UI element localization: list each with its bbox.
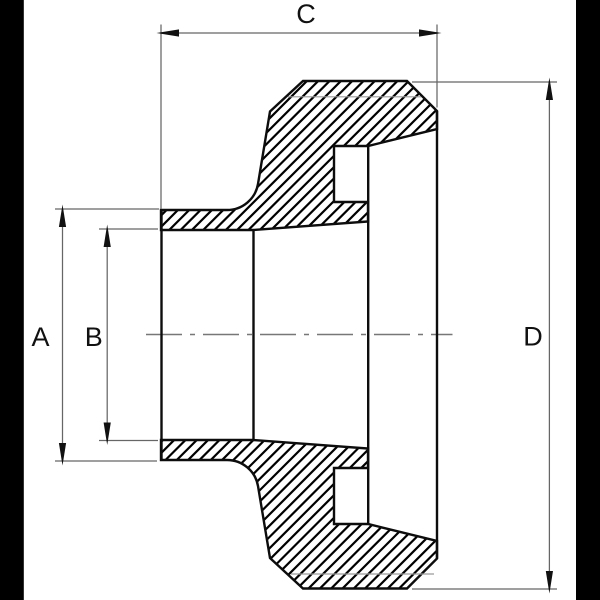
svg-text:C: C: [296, 0, 316, 29]
svg-text:B: B: [85, 322, 103, 352]
svg-text:A: A: [31, 322, 49, 352]
svg-text:D: D: [523, 322, 543, 352]
